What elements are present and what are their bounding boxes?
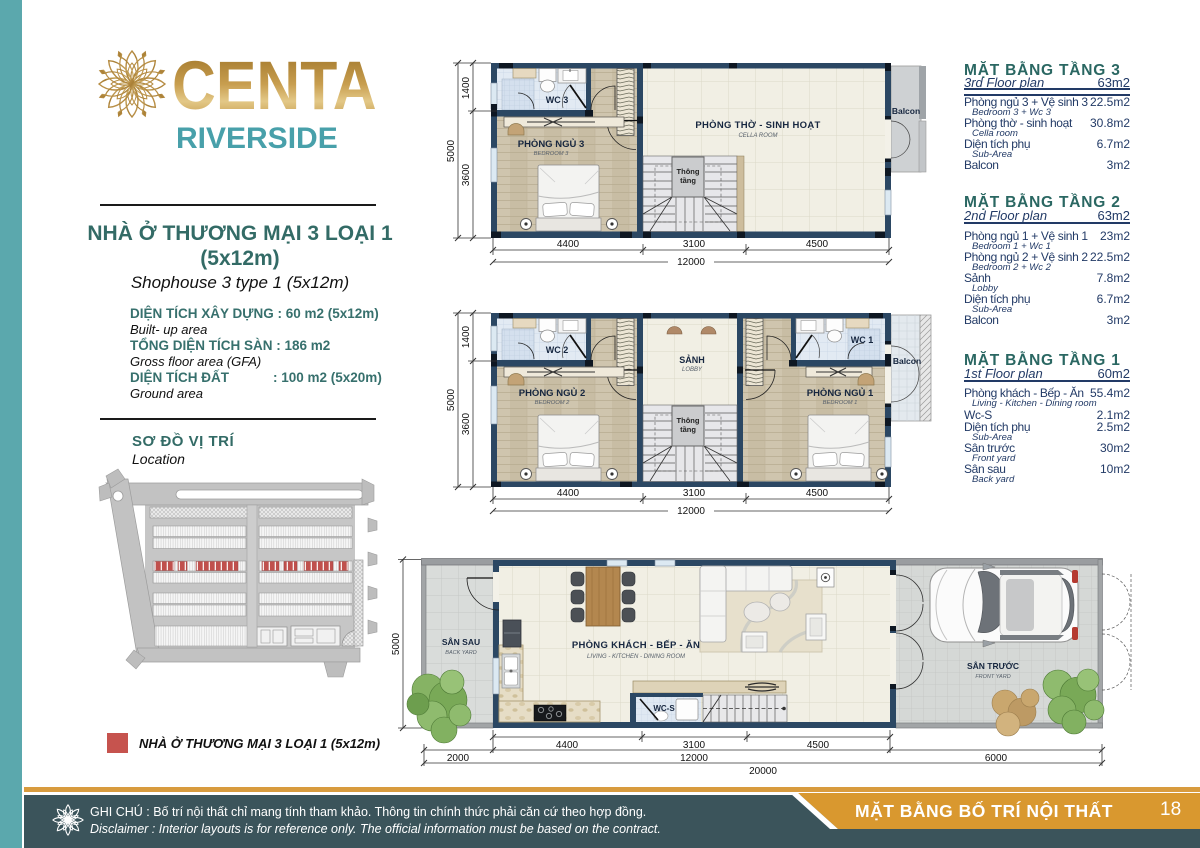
svg-text:Balcon: Balcon [893, 356, 921, 366]
svg-text:LOBBY: LOBBY [682, 367, 703, 373]
svg-text:BEDROOM 3: BEDROOM 3 [534, 151, 570, 157]
svg-text:Balcon: Balcon [892, 106, 920, 116]
svg-text:4400: 4400 [557, 239, 580, 250]
svg-text:12000: 12000 [680, 753, 708, 764]
svg-text:FRONT YARD: FRONT YARD [975, 674, 1010, 680]
svg-text:5000: 5000 [446, 388, 457, 411]
svg-text:4400: 4400 [557, 488, 580, 499]
svg-text:20000: 20000 [749, 766, 777, 777]
svg-text:4500: 4500 [806, 488, 829, 499]
svg-text:SẢNH: SẢNH [679, 354, 705, 365]
svg-text:PHÒNG THỜ - SINH HOẠT: PHÒNG THỜ - SINH HOẠT [695, 119, 820, 131]
svg-text:6000: 6000 [985, 753, 1008, 764]
svg-text:4400: 4400 [556, 740, 579, 751]
svg-text:WC 3: WC 3 [546, 95, 569, 105]
svg-text:5000: 5000 [391, 632, 402, 655]
svg-text:3600: 3600 [461, 412, 472, 435]
svg-text:3100: 3100 [683, 239, 706, 250]
svg-text:3100: 3100 [683, 488, 706, 499]
svg-text:Thông: Thông [677, 416, 700, 425]
svg-text:tầng: tầng [680, 176, 696, 185]
svg-text:BEDROOM 2: BEDROOM 2 [535, 400, 571, 406]
svg-text:1400: 1400 [461, 76, 472, 99]
svg-text:3100: 3100 [683, 740, 706, 751]
svg-text:4500: 4500 [807, 740, 830, 751]
svg-text:5000: 5000 [446, 139, 457, 162]
svg-text:PHÒNG NGỦ 2: PHÒNG NGỦ 2 [519, 387, 586, 399]
svg-text:LIVING - KITCHEN - DINING ROOM: LIVING - KITCHEN - DINING ROOM [587, 654, 685, 660]
svg-text:WC 1: WC 1 [851, 335, 874, 345]
svg-text:CELLA ROOM: CELLA ROOM [738, 133, 777, 139]
svg-text:BEDROOM 1: BEDROOM 1 [823, 400, 858, 406]
svg-text:1400: 1400 [461, 325, 472, 348]
svg-text:SÂN SAU: SÂN SAU [442, 636, 480, 647]
svg-text:SÂN TRƯỚC: SÂN TRƯỚC [967, 660, 1019, 671]
svg-text:4500: 4500 [806, 239, 829, 250]
svg-text:BACK YARD: BACK YARD [445, 650, 476, 656]
svg-text:2000: 2000 [447, 753, 470, 764]
svg-text:WC-S: WC-S [653, 704, 675, 713]
svg-text:3600: 3600 [461, 163, 472, 186]
svg-text:Thông: Thông [677, 167, 700, 176]
svg-text:12000: 12000 [677, 257, 705, 268]
svg-text:tầng: tầng [680, 425, 696, 434]
svg-text:PHÒNG NGỦ 3: PHÒNG NGỦ 3 [518, 138, 585, 150]
svg-text:WC 2: WC 2 [546, 345, 569, 355]
svg-text:PHÒNG NGỦ 1: PHÒNG NGỦ 1 [807, 387, 874, 399]
svg-text:12000: 12000 [677, 506, 705, 517]
svg-text:PHÒNG KHÁCH - BẾP - ĂN: PHÒNG KHÁCH - BẾP - ĂN [572, 639, 700, 651]
